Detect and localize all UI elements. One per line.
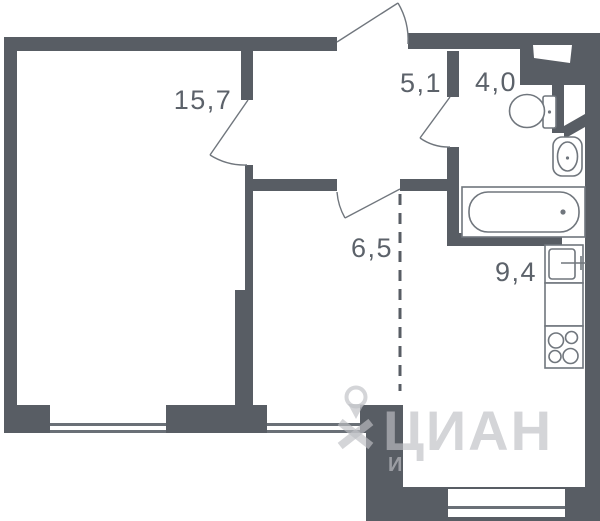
cian-watermark-line2: И [388,454,402,476]
kitchen-fixtures [545,245,586,368]
sink-icon [553,137,582,176]
window-kitchen [448,489,565,517]
floorplan-svg: 15,7 5,1 4,0 6,5 9,4 ЦИАН И [0,0,600,521]
wall-bath-west-lower [447,147,459,246]
area-label-living: 15,7 [174,85,233,115]
area-label-hallway: 5,1 [400,68,442,98]
wall-right [585,33,600,521]
wall-top-left [4,37,337,51]
floorplan-page: 15,7 5,1 4,0 6,5 9,4 ЦИАН И [0,0,600,521]
window-living [50,405,166,433]
wall-bath-west-upper [447,51,459,97]
kitchen-sink-icon [545,245,586,283]
wall-hall-south-left [253,179,337,191]
toilet-icon [510,95,557,129]
bathtub-icon [462,187,585,237]
kitchen-counter-icon [545,283,583,326]
wall-divider-mid [245,165,253,290]
wall-divider-lower [235,290,253,405]
stove-icon [545,326,583,368]
area-label-bathroom: 4,0 [475,67,517,97]
wall-hall-south-right [400,179,447,191]
cian-brand-text: ЦИАН [383,399,553,462]
area-label-kitchen: 9,4 [495,257,537,287]
wall-left [4,37,17,433]
wall-divider-upper [241,51,253,100]
area-label-inner-room: 6,5 [351,233,393,263]
